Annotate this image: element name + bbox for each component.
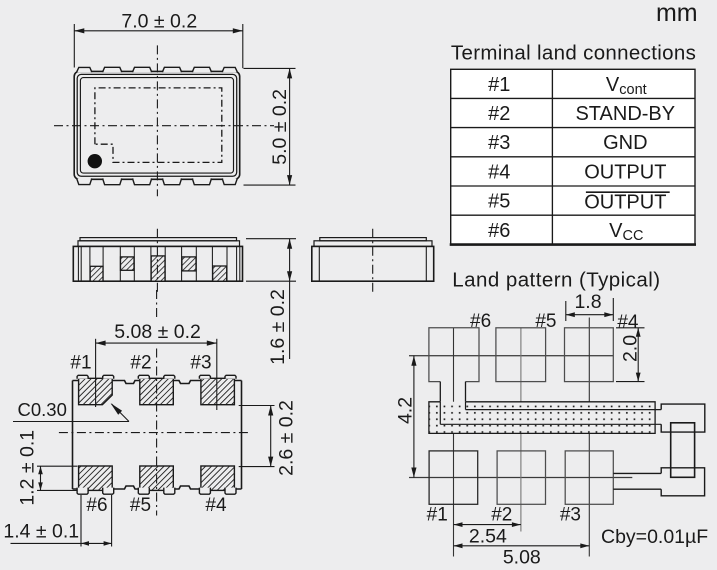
svg-text:#6: #6	[488, 220, 510, 242]
svg-text:1.6 ± 0.2: 1.6 ± 0.2	[267, 289, 289, 365]
svg-text:#1: #1	[70, 353, 91, 374]
svg-text:Land pattern (Typical): Land pattern (Typical)	[452, 269, 660, 292]
svg-text:#3: #3	[560, 504, 581, 525]
svg-text:#6: #6	[470, 311, 491, 332]
svg-text:#5: #5	[130, 495, 151, 516]
svg-text:#2: #2	[491, 504, 512, 525]
svg-text:2.6 ± 0.2: 2.6 ± 0.2	[275, 400, 297, 476]
svg-text:GND: GND	[603, 132, 647, 154]
svg-text:1.4 ± 0.1: 1.4 ± 0.1	[3, 520, 79, 542]
svg-text:#4: #4	[205, 495, 227, 516]
svg-text:1.2 ± 0.1: 1.2 ± 0.1	[17, 430, 39, 506]
svg-text:OUTPUT: OUTPUT	[584, 192, 666, 214]
svg-text:#2: #2	[130, 353, 151, 374]
svg-text:4.2: 4.2	[395, 397, 417, 424]
svg-text:C0.30: C0.30	[18, 399, 67, 420]
svg-text:#3: #3	[190, 353, 211, 374]
svg-text:#2: #2	[488, 103, 510, 125]
svg-text:#1: #1	[427, 504, 448, 525]
svg-text:2.54: 2.54	[469, 525, 507, 547]
svg-text:7.0 ± 0.2: 7.0 ± 0.2	[121, 10, 197, 32]
svg-text:#1: #1	[488, 74, 510, 96]
svg-text:5.0 ± 0.2: 5.0 ± 0.2	[269, 89, 291, 165]
svg-text:#6: #6	[86, 495, 107, 516]
svg-text:#3: #3	[488, 132, 510, 154]
svg-text:mm: mm	[656, 0, 698, 27]
svg-text:STAND-BY: STAND-BY	[575, 103, 675, 125]
svg-text:#4: #4	[617, 312, 639, 333]
svg-text:#5: #5	[535, 311, 556, 332]
svg-text:OUTPUT: OUTPUT	[584, 161, 666, 183]
svg-text:2.0: 2.0	[620, 335, 642, 362]
svg-text:Cby=0.01µF: Cby=0.01µF	[601, 526, 708, 548]
svg-text:Terminal land connections: Terminal land connections	[451, 41, 696, 64]
svg-text:#4: #4	[488, 161, 510, 183]
svg-text:5.08: 5.08	[503, 546, 541, 568]
svg-text:5.08 ± 0.2: 5.08 ± 0.2	[114, 321, 201, 343]
svg-text:1.8: 1.8	[574, 291, 601, 313]
svg-text:#5: #5	[488, 191, 510, 213]
